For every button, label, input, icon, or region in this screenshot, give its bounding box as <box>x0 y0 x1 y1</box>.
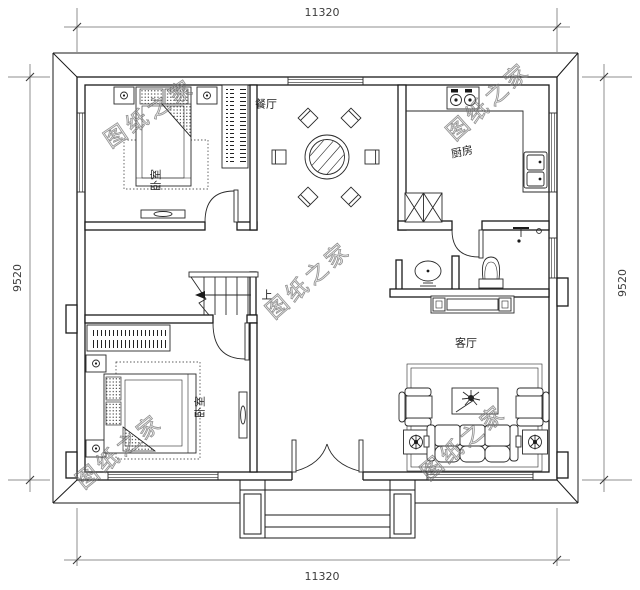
dimension-left-value: 9520 <box>11 264 24 292</box>
dimension-bottom: 11320 <box>64 508 570 583</box>
dimension-right: 9520 <box>582 64 632 492</box>
floor-plan-page: 11320 11320 9520 9520 <box>0 0 640 590</box>
wall-washnook-west <box>396 260 402 291</box>
wall-bedroomtop-south-left <box>85 222 205 230</box>
left-pilaster <box>66 305 77 333</box>
dining-table <box>305 135 349 179</box>
kitchen-flue <box>405 193 442 222</box>
right-bottom-pilaster <box>557 452 568 478</box>
dimension-bottom-value: 11320 <box>305 570 340 583</box>
floor-plan-canvas: 11320 11320 9520 9520 <box>0 0 640 590</box>
wall-bedroombottom-east <box>250 323 257 472</box>
tv-cabinet <box>431 296 514 313</box>
dimension-right-value: 9520 <box>616 269 629 297</box>
bedroom-bottom-label: 卧室 <box>193 396 207 418</box>
bedroom-top-label: 卧室 <box>149 169 163 191</box>
armchair-left <box>399 388 432 426</box>
wall-stair-east <box>250 272 256 315</box>
pillow <box>106 402 121 425</box>
wall-bathroom-divider <box>452 256 459 291</box>
side-table-plant <box>523 430 548 454</box>
dimension-left: 9520 <box>8 64 50 492</box>
stair-landing <box>189 272 258 277</box>
dining-chair <box>365 150 379 164</box>
armchair-right <box>516 388 549 426</box>
wall-bedroombottom-north-right <box>247 315 257 323</box>
dimension-top: 11320 <box>64 6 570 52</box>
dining-chair <box>272 150 286 164</box>
dining-label: 餐厅 <box>255 97 277 111</box>
pillow <box>106 377 121 400</box>
living-label: 客厅 <box>455 336 477 350</box>
right-pilaster <box>557 278 568 306</box>
entry-porch <box>240 480 415 538</box>
dimension-top-value: 11320 <box>305 6 340 19</box>
wall-bedroombottom-north-left <box>85 315 213 323</box>
